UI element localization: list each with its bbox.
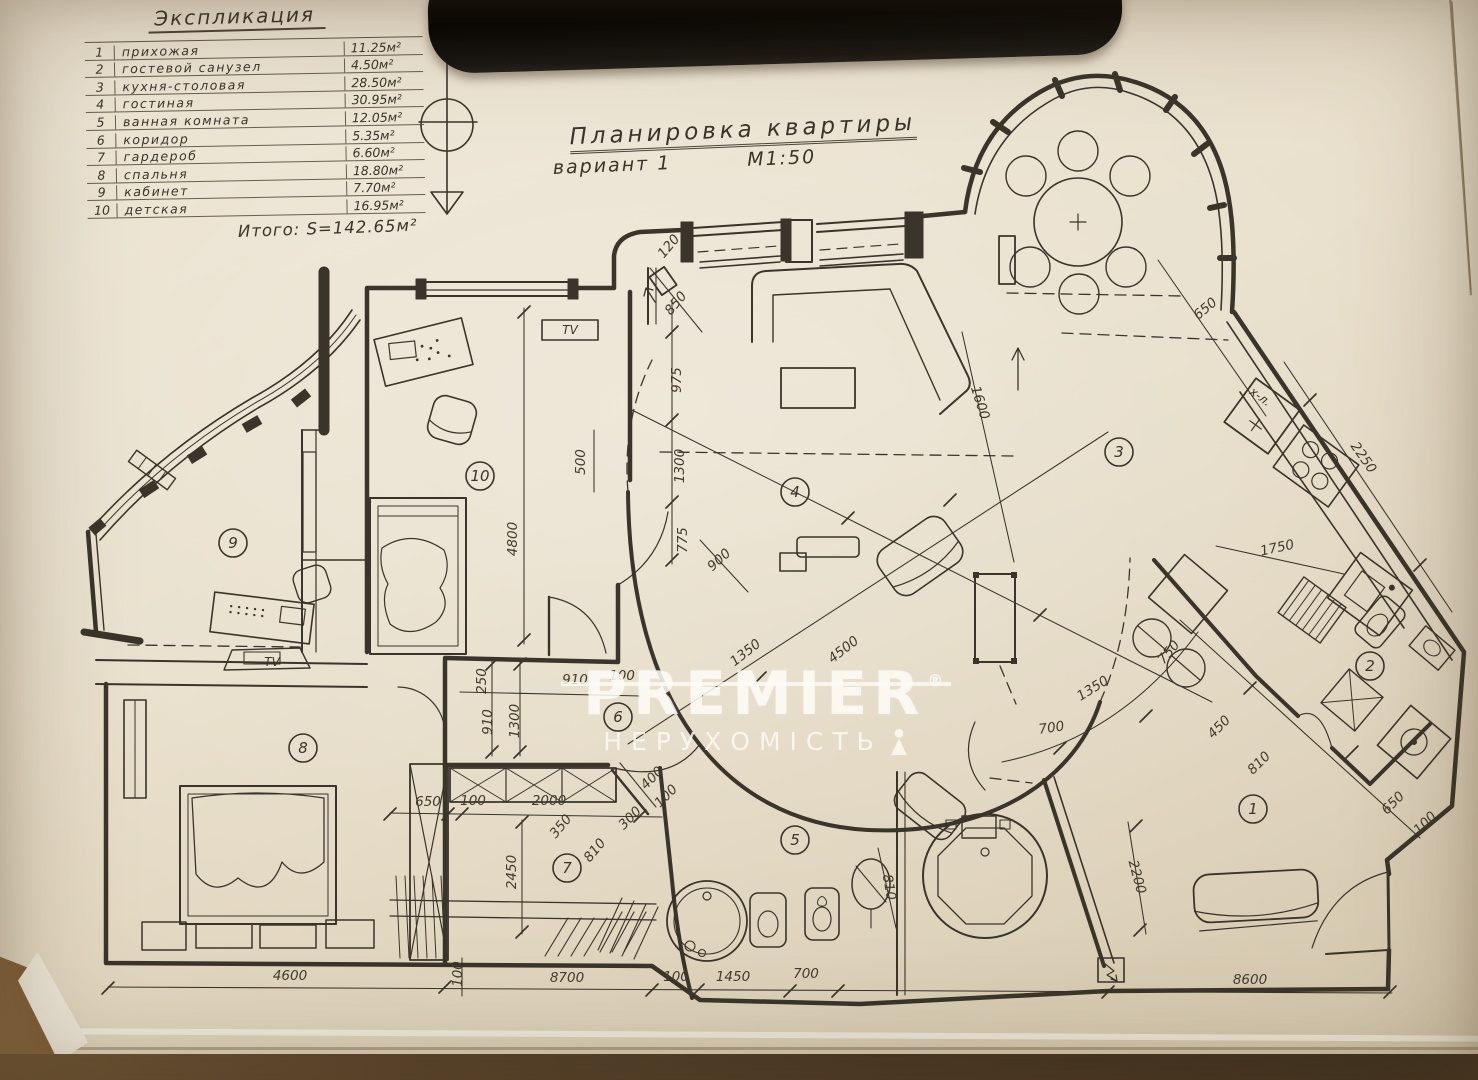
wall-inner-lines	[897, 87, 1452, 995]
dim-tick	[842, 512, 854, 524]
dim-label: 775	[675, 527, 691, 553]
dim-tick	[832, 985, 844, 997]
dim-label: 4600	[273, 968, 307, 984]
plan-scale: М1:50	[747, 146, 817, 171]
dim-tick	[384, 808, 396, 820]
dim-label: 500	[573, 449, 589, 475]
dim-label: 2200	[1125, 858, 1149, 895]
dim-tick	[944, 494, 956, 506]
dim-label: 810	[581, 835, 610, 865]
floor-plan-photo: 4600870010014507008600100650100200024503…	[0, 0, 1478, 1080]
dim-label: 8700	[550, 970, 584, 986]
dim-label: 650	[1378, 788, 1408, 818]
room-number: 7	[562, 859, 572, 877]
room-number: 5	[790, 831, 800, 849]
dim-label: 4500	[825, 633, 862, 667]
dim-tick	[102, 982, 114, 994]
legend-title: Экспликация	[148, 2, 326, 34]
dim-tick	[1414, 559, 1426, 571]
dim-tick	[754, 672, 766, 684]
room-number: 10	[470, 467, 489, 485]
dim-label: 750	[1155, 637, 1184, 667]
annotation-label: TV	[562, 323, 578, 337]
dim-tick	[1346, 746, 1358, 758]
dim-label: 650	[415, 794, 441, 810]
dim-label: 2000	[532, 793, 566, 809]
dim-label: 100	[460, 793, 486, 809]
dim-tick	[1034, 609, 1046, 621]
axis-symbol	[419, 58, 477, 214]
legend-table: Экспликация 1прихожая11.25м²2гостевой са…	[84, 1, 426, 242]
dimension-ticks	[102, 306, 1426, 998]
dim-tick	[1140, 710, 1152, 722]
dim-label: 8600	[1233, 972, 1267, 988]
paper-fold	[0, 1047, 1478, 1050]
dim-label: 100	[663, 969, 689, 985]
dim-tick	[1304, 394, 1316, 406]
dim-label: 2450	[504, 855, 520, 889]
room-number: 6	[613, 708, 623, 726]
legend-rows: 1прихожая11.25м²2гостевой санузел4.50м²3…	[85, 36, 426, 219]
room-number: 2	[1365, 657, 1375, 675]
dim-label: 1600	[967, 384, 993, 422]
table-surface-bottom	[0, 1054, 1478, 1080]
dim-label: 100	[609, 668, 635, 684]
dim-label: 100	[450, 961, 466, 987]
dim-label: 120	[655, 231, 684, 261]
dim-label: 975	[669, 367, 685, 393]
dim-label: 1350	[1074, 673, 1112, 705]
living-room-curved-wall	[628, 492, 1100, 830]
dim-label: 300	[615, 803, 645, 833]
room-number: 8	[298, 739, 308, 757]
dim-tick	[1134, 924, 1146, 936]
dim-label: 910	[562, 672, 588, 688]
dim-label: 1300	[672, 449, 688, 483]
room-number: 9	[228, 534, 238, 552]
dim-label: 910	[480, 709, 496, 735]
dim-label: 650	[1190, 295, 1220, 324]
dim-label: 250	[474, 668, 490, 694]
room-number: 4	[790, 483, 800, 501]
dim-label: 2250	[1347, 439, 1380, 476]
room-number: 3	[1114, 443, 1124, 461]
dim-label: 1300	[507, 704, 523, 738]
dim-tick	[1130, 820, 1142, 832]
dim-label: 700	[1038, 718, 1066, 737]
interior-walls	[96, 267, 677, 687]
dimension-lines	[108, 260, 1452, 996]
dim-label: 1350	[727, 636, 764, 670]
dim-label: 1450	[716, 969, 750, 985]
annotation-label: TV	[264, 655, 280, 669]
dim-label: 1750	[1259, 537, 1296, 560]
dim-label: 700	[793, 966, 819, 982]
dim-label: 810	[1244, 748, 1274, 778]
dim-label: 4800	[505, 522, 521, 556]
dim-tick	[784, 985, 796, 997]
dim-label: 450	[1204, 712, 1234, 742]
room-number: 1	[1248, 800, 1258, 818]
